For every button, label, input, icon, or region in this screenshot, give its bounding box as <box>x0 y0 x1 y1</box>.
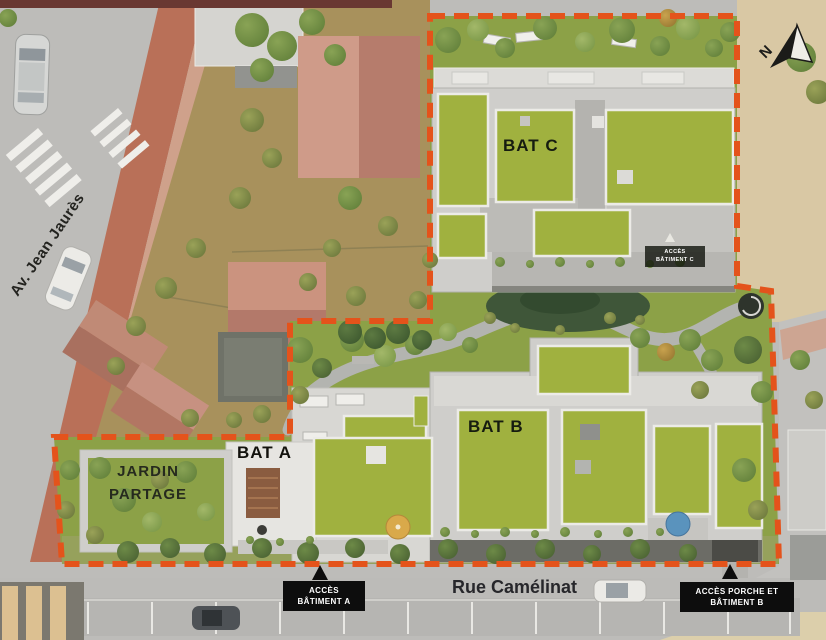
access-b-sign: ACCÈS PORCHE ET BÂTIMENT B <box>680 582 794 612</box>
tree <box>691 381 709 399</box>
tree <box>676 16 700 40</box>
tree <box>471 530 479 538</box>
tree <box>679 329 701 351</box>
porch-passage <box>712 540 758 562</box>
tree <box>299 9 325 35</box>
tree <box>656 528 664 536</box>
tree <box>299 273 317 291</box>
tree <box>345 538 365 558</box>
tree <box>323 239 341 257</box>
tree <box>412 330 432 350</box>
access-c-sign: ACCÈS BÂTIMENT C <box>645 246 705 267</box>
access-a-line1: ACCÈS <box>309 586 339 595</box>
tree <box>679 544 697 562</box>
tree <box>364 327 386 349</box>
tree <box>229 187 251 209</box>
tree <box>630 539 650 559</box>
car <box>192 606 240 630</box>
tree <box>748 500 768 520</box>
access-b-line1: ACCÈS PORCHE ET <box>696 587 779 596</box>
tree <box>575 32 595 52</box>
tree <box>160 538 180 558</box>
tree <box>235 13 269 47</box>
site-plan-scene: N <box>0 0 826 640</box>
tree <box>297 542 319 564</box>
tree <box>533 16 557 40</box>
house-roof <box>298 36 420 178</box>
tree <box>560 527 570 537</box>
tree <box>253 405 271 423</box>
access-a-line2: BÂTIMENT A <box>297 597 350 606</box>
tree <box>734 336 762 364</box>
tree <box>609 17 635 43</box>
tree <box>276 538 284 546</box>
top-roof-edge <box>0 0 392 8</box>
tree <box>701 349 723 371</box>
garden-bench <box>352 356 374 364</box>
access-arrow-icon <box>312 565 328 580</box>
tree <box>126 316 146 336</box>
tree <box>246 536 254 544</box>
tree <box>338 186 362 210</box>
tree <box>751 381 773 403</box>
tree <box>790 350 810 370</box>
tree <box>155 277 177 299</box>
tree <box>346 286 366 306</box>
tree <box>594 530 602 538</box>
tree <box>484 312 496 324</box>
tree <box>226 412 242 428</box>
shared-garden-label: JARDIN PARTAGE <box>90 460 206 507</box>
tree <box>615 257 625 267</box>
tree <box>805 391 823 409</box>
car <box>13 34 50 115</box>
tree <box>438 539 458 559</box>
grill <box>257 525 267 535</box>
shared-garden-line1: JARDIN <box>117 463 179 480</box>
tree <box>630 328 650 348</box>
parasol-top <box>396 525 401 530</box>
tree <box>240 108 264 132</box>
tree <box>535 539 555 559</box>
tree <box>291 386 309 404</box>
tree <box>267 31 297 61</box>
tree <box>510 323 520 333</box>
site-plan-rendering: N Av. Jean Jaurès BAT C BAT B BAT A JARD… <box>0 0 826 640</box>
crosswalk <box>2 586 66 640</box>
tree <box>409 291 427 309</box>
tree <box>186 238 206 258</box>
tree <box>555 257 565 267</box>
tree <box>586 260 594 268</box>
shared-garden-line2: PARTAGE <box>109 486 187 503</box>
tree <box>732 458 756 482</box>
tree <box>657 343 675 361</box>
tree <box>462 337 478 353</box>
access-arrow-icon <box>665 233 675 242</box>
building-a-label: BAT A <box>237 443 292 463</box>
tree <box>526 260 534 268</box>
tree <box>467 19 489 41</box>
access-b-line2: BÂTIMENT B <box>710 598 763 607</box>
building-b-label: BAT B <box>468 417 524 437</box>
tree <box>378 216 398 236</box>
tree <box>604 312 616 324</box>
tree <box>583 545 601 563</box>
tree <box>495 38 515 58</box>
tree <box>60 460 80 480</box>
tree <box>262 148 282 168</box>
blue-awning <box>666 512 690 536</box>
planter <box>414 396 428 426</box>
access-c-line1: ACCÈS <box>664 249 685 255</box>
tree <box>439 323 457 341</box>
tree <box>312 358 332 378</box>
east-building-roof <box>790 535 826 580</box>
east-building-roof <box>788 430 826 530</box>
tree <box>623 527 633 537</box>
car <box>594 580 646 602</box>
access-a-sign: ACCÈS BÂTIMENT A <box>283 581 365 611</box>
access-c-line2: BÂTIMENT C <box>656 257 694 263</box>
tree <box>142 512 162 532</box>
tree <box>495 257 505 267</box>
tree <box>117 541 139 563</box>
tree <box>555 325 565 335</box>
tree <box>500 527 510 537</box>
house-dark-roof-inner <box>224 338 282 396</box>
tree <box>86 526 104 544</box>
tree <box>435 27 461 53</box>
access-arrow-icon <box>722 564 738 579</box>
tree <box>306 536 314 544</box>
tree <box>250 58 274 82</box>
tree <box>705 39 723 57</box>
tree <box>650 36 670 56</box>
pergola <box>246 468 280 518</box>
tree <box>252 538 272 558</box>
roof-planter <box>452 72 684 84</box>
tree <box>324 44 346 66</box>
tree <box>440 527 450 537</box>
tree <box>531 530 539 538</box>
tree <box>107 357 125 375</box>
tree <box>635 315 645 325</box>
street-label-rue-camelinat: Rue Camélinat <box>452 577 577 598</box>
tree <box>181 409 199 427</box>
building-c-label: BAT C <box>503 136 559 156</box>
